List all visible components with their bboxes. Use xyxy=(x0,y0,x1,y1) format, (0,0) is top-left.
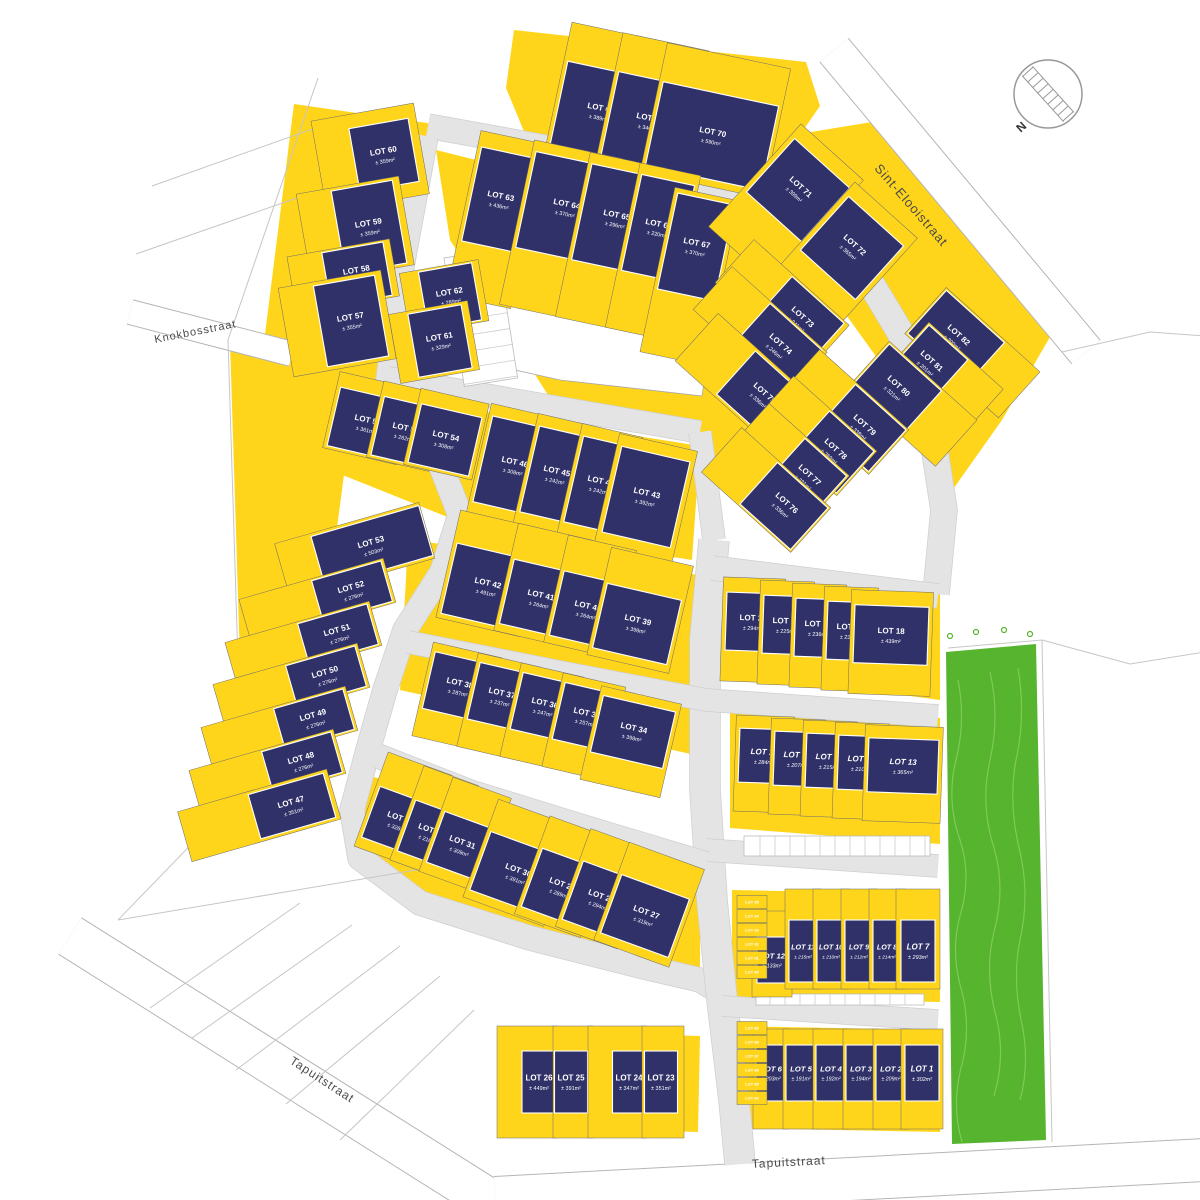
lot-lot-7[interactable]: LOT 7± 293m² xyxy=(896,889,940,989)
lot-lot-61[interactable]: LOT 61± 329m² xyxy=(389,301,480,384)
garage-label: LOT 90 xyxy=(745,970,759,975)
lot-label: LOT 1 xyxy=(911,1065,934,1074)
lot-lot-57[interactable]: LOT 57± 355m² xyxy=(278,270,396,377)
tree-icon xyxy=(1028,632,1033,637)
parking-bay xyxy=(744,836,930,856)
lot-label: LOT 10 xyxy=(819,944,843,952)
lot-area: ± 214m² xyxy=(878,954,896,960)
site-plan-svg: LOT 68± 389m²LOT 69± 346m²LOT 70± 590m²L… xyxy=(0,0,1200,1200)
lot-label: LOT 25 xyxy=(557,1074,585,1083)
lot-label: LOT 24 xyxy=(615,1074,643,1083)
garage-lot-84[interactable]: LOT 84 xyxy=(737,1092,767,1105)
lot-lot-1[interactable]: LOT 1± 302m² xyxy=(901,1029,943,1129)
boundary-line xyxy=(286,976,440,1104)
north-compass-icon: N xyxy=(1013,60,1082,135)
garage-lot-93[interactable]: LOT 93 xyxy=(737,924,767,937)
lot-label: LOT 23 xyxy=(647,1074,675,1083)
lot-lot-23[interactable]: LOT 23± 351m² xyxy=(642,1026,684,1138)
road xyxy=(700,432,714,540)
lot-area: ± 302m² xyxy=(912,1077,932,1083)
street xyxy=(495,1160,1200,1198)
lot-area: ± 209m² xyxy=(881,1077,900,1083)
site-plan: LOT 68± 389m²LOT 69± 346m²LOT 70± 590m²L… xyxy=(0,0,1200,1200)
garage-lot-91[interactable]: LOT 91 xyxy=(737,952,767,965)
garage-label: LOT 94 xyxy=(745,914,759,919)
lot-label: LOT 2 xyxy=(880,1065,903,1074)
garage-lot-86[interactable]: LOT 86 xyxy=(737,1064,767,1077)
boundary-line xyxy=(236,946,400,1070)
garage-label: LOT 84 xyxy=(745,1096,759,1101)
garage-label: LOT 91 xyxy=(745,956,759,961)
tree-icon xyxy=(974,630,979,635)
lot-area: ± 192m² xyxy=(821,1077,840,1083)
boundary-line xyxy=(340,1010,474,1140)
street xyxy=(70,936,505,1200)
lot-area: ± 351m² xyxy=(651,1086,671,1092)
garage-label: LOT 88 xyxy=(745,1040,759,1045)
lot-lot-26[interactable]: LOT 26± 449m² xyxy=(497,1026,557,1138)
garage-lot-85[interactable]: LOT 85 xyxy=(737,1078,767,1091)
garage-lot-88[interactable]: LOT 88 xyxy=(737,1036,767,1049)
boundary-line xyxy=(150,903,300,1008)
tree-icon xyxy=(948,634,953,639)
boundary-line xyxy=(1042,640,1200,664)
lot-label: LOT 8 xyxy=(877,944,897,952)
garage-label: LOT 89 xyxy=(745,1026,759,1031)
garage-label: LOT 87 xyxy=(745,1054,759,1059)
garage-lot-92[interactable]: LOT 92 xyxy=(737,938,767,951)
lot-label: LOT 13 xyxy=(889,757,917,767)
lot-label: LOT 3 xyxy=(850,1065,873,1074)
lot-label: LOT 11 xyxy=(791,944,815,952)
tree-icon xyxy=(1002,628,1007,633)
garage-label: LOT 95 xyxy=(745,900,759,905)
lot-area: ± 215m² xyxy=(794,954,812,960)
garage-lot-89[interactable]: LOT 89 xyxy=(737,1022,767,1035)
lot-lot-13[interactable]: LOT 13± 365m² xyxy=(862,725,943,824)
garage-label: LOT 86 xyxy=(745,1068,759,1073)
boundary-line xyxy=(118,868,428,920)
lot-area: ± 347m² xyxy=(619,1086,639,1092)
garage-label: LOT 92 xyxy=(745,942,759,947)
lot-lot-18[interactable]: LOT 18± 439m² xyxy=(848,590,934,697)
lot-label: LOT 26 xyxy=(525,1074,553,1083)
lot-area: ± 293m² xyxy=(908,955,928,961)
lot-label: LOT 9 xyxy=(849,944,869,952)
garage-lot-87[interactable]: LOT 87 xyxy=(737,1050,767,1063)
garage-label: LOT 85 xyxy=(745,1082,759,1087)
lot-lot-25[interactable]: LOT 25± 391m² xyxy=(553,1026,593,1138)
lot-area: ± 439m² xyxy=(881,639,901,646)
garage-label: LOT 93 xyxy=(745,928,759,933)
lot-area: ± 449m² xyxy=(529,1086,549,1092)
lot-lot-24[interactable]: LOT 24± 347m² xyxy=(588,1026,646,1138)
lot-label: LOT 18 xyxy=(877,626,905,636)
lot-label: LOT 7 xyxy=(907,943,930,952)
lot-area: ± 391m² xyxy=(561,1086,581,1092)
lot-area: ± 194m² xyxy=(851,1077,870,1083)
lot-area: ± 210m² xyxy=(822,954,840,960)
boundary-line xyxy=(192,925,352,1038)
lot-area: ± 365m² xyxy=(893,770,913,777)
road xyxy=(722,1006,938,1020)
lot-label: LOT 4 xyxy=(820,1065,843,1074)
garage-lot-90[interactable]: LOT 90 xyxy=(737,966,767,979)
lot-area: ± 191m² xyxy=(791,1077,810,1083)
lot-label: LOT 5 xyxy=(790,1065,813,1074)
garage-lot-94[interactable]: LOT 94 xyxy=(737,910,767,923)
lot-area: ± 212m² xyxy=(850,954,868,960)
garage-lot-95[interactable]: LOT 95 xyxy=(737,896,767,909)
